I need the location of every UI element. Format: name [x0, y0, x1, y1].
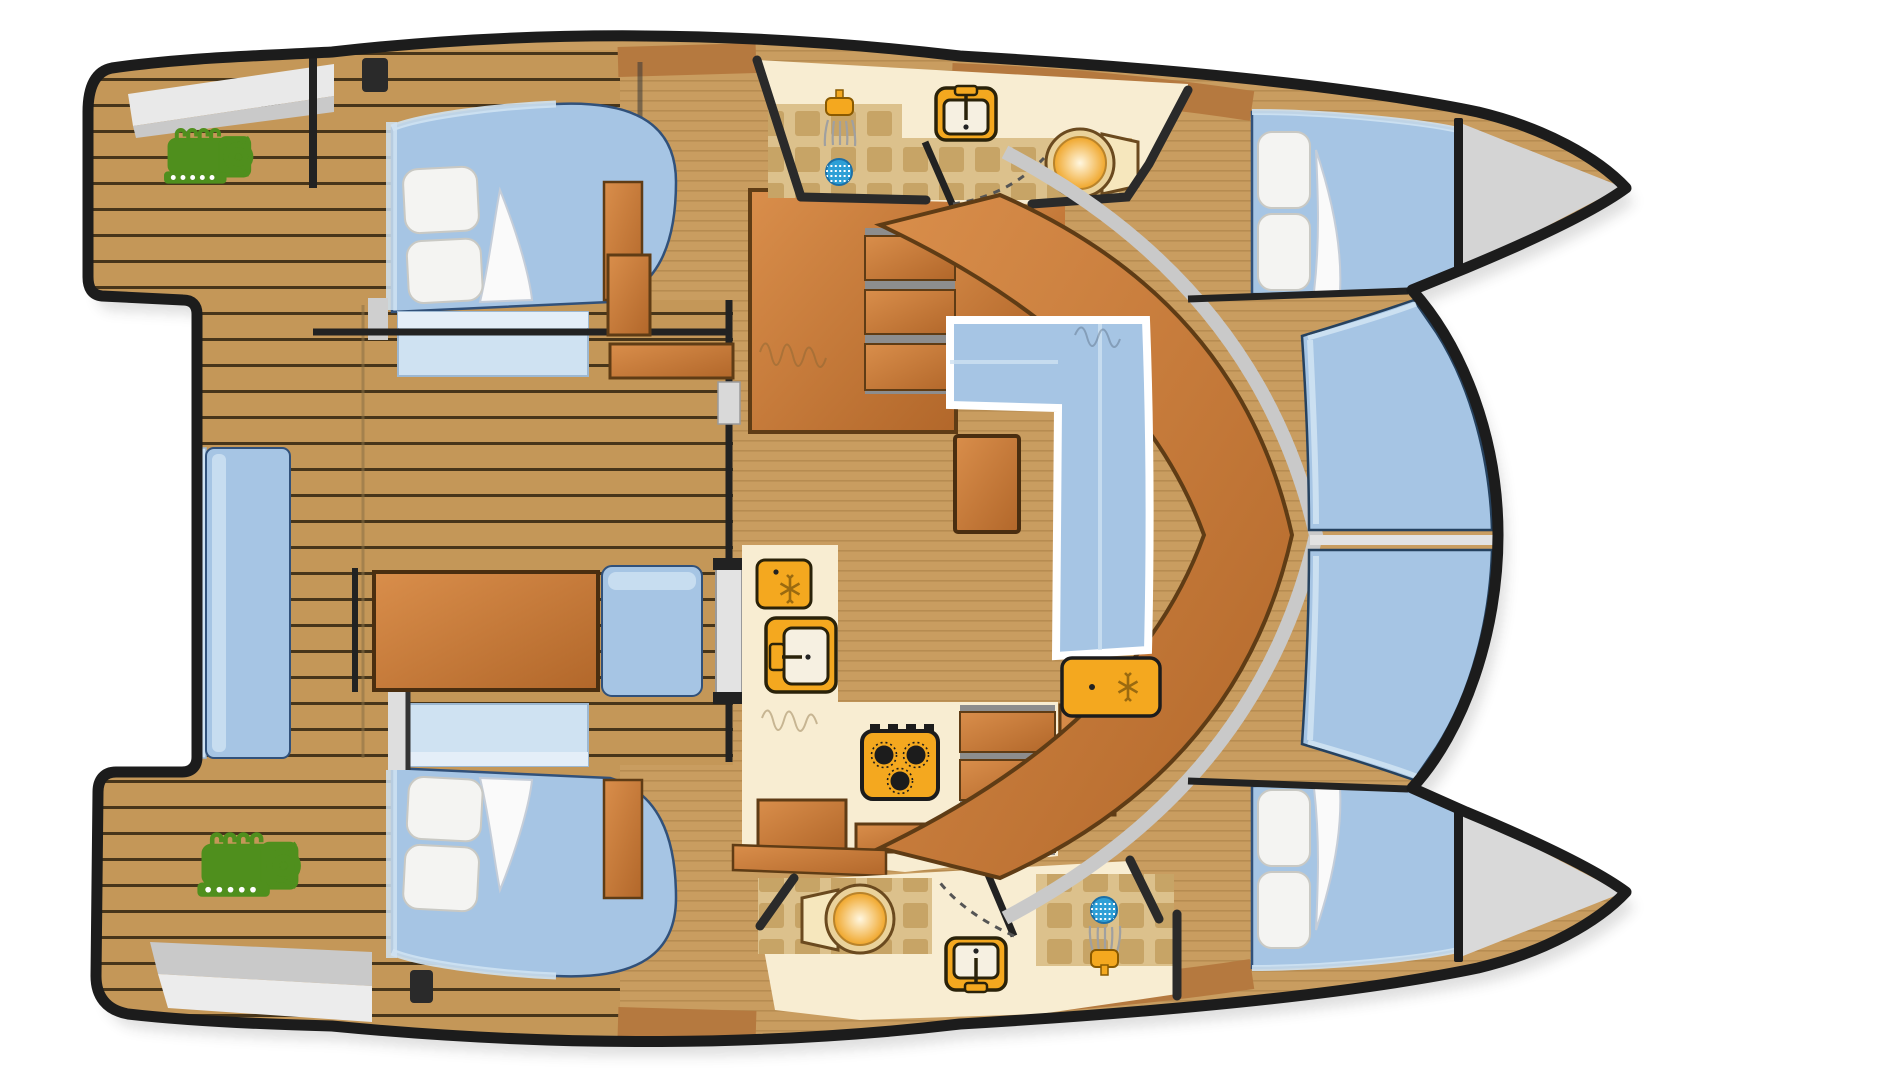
starboard-head: [758, 860, 1177, 1020]
lounge-cushion: [1302, 300, 1492, 530]
starboard-engine: [198, 835, 298, 897]
cockpit-bench: [188, 448, 290, 758]
wardrobe: [604, 780, 642, 898]
cockpit-table: [374, 572, 598, 690]
fridge-icon: [1062, 658, 1160, 716]
fridge-icon: [757, 560, 811, 608]
cockpit-post: [608, 255, 650, 335]
bow-bulkhead: [1454, 118, 1463, 278]
bed-icon: [1252, 112, 1458, 294]
sink-icon: [936, 86, 996, 140]
floor-plan-svg: [0, 0, 1897, 1080]
lounge-cushion: [1302, 550, 1492, 780]
stove-icon: [862, 724, 938, 799]
bed-icon: [1252, 786, 1458, 968]
bow-bulkhead: [1454, 802, 1463, 962]
cockpit-sill: [610, 344, 733, 378]
port-head: [757, 60, 1188, 206]
bed-bench: [398, 704, 588, 766]
sink-icon: [946, 938, 1006, 992]
bed-bench: [398, 312, 588, 376]
catamaran-floor-plan: [0, 0, 1897, 1080]
salon-table: [955, 436, 1019, 532]
sink-icon: [766, 618, 836, 692]
port-engine: [164, 130, 250, 183]
toilet-icon: [802, 885, 894, 953]
